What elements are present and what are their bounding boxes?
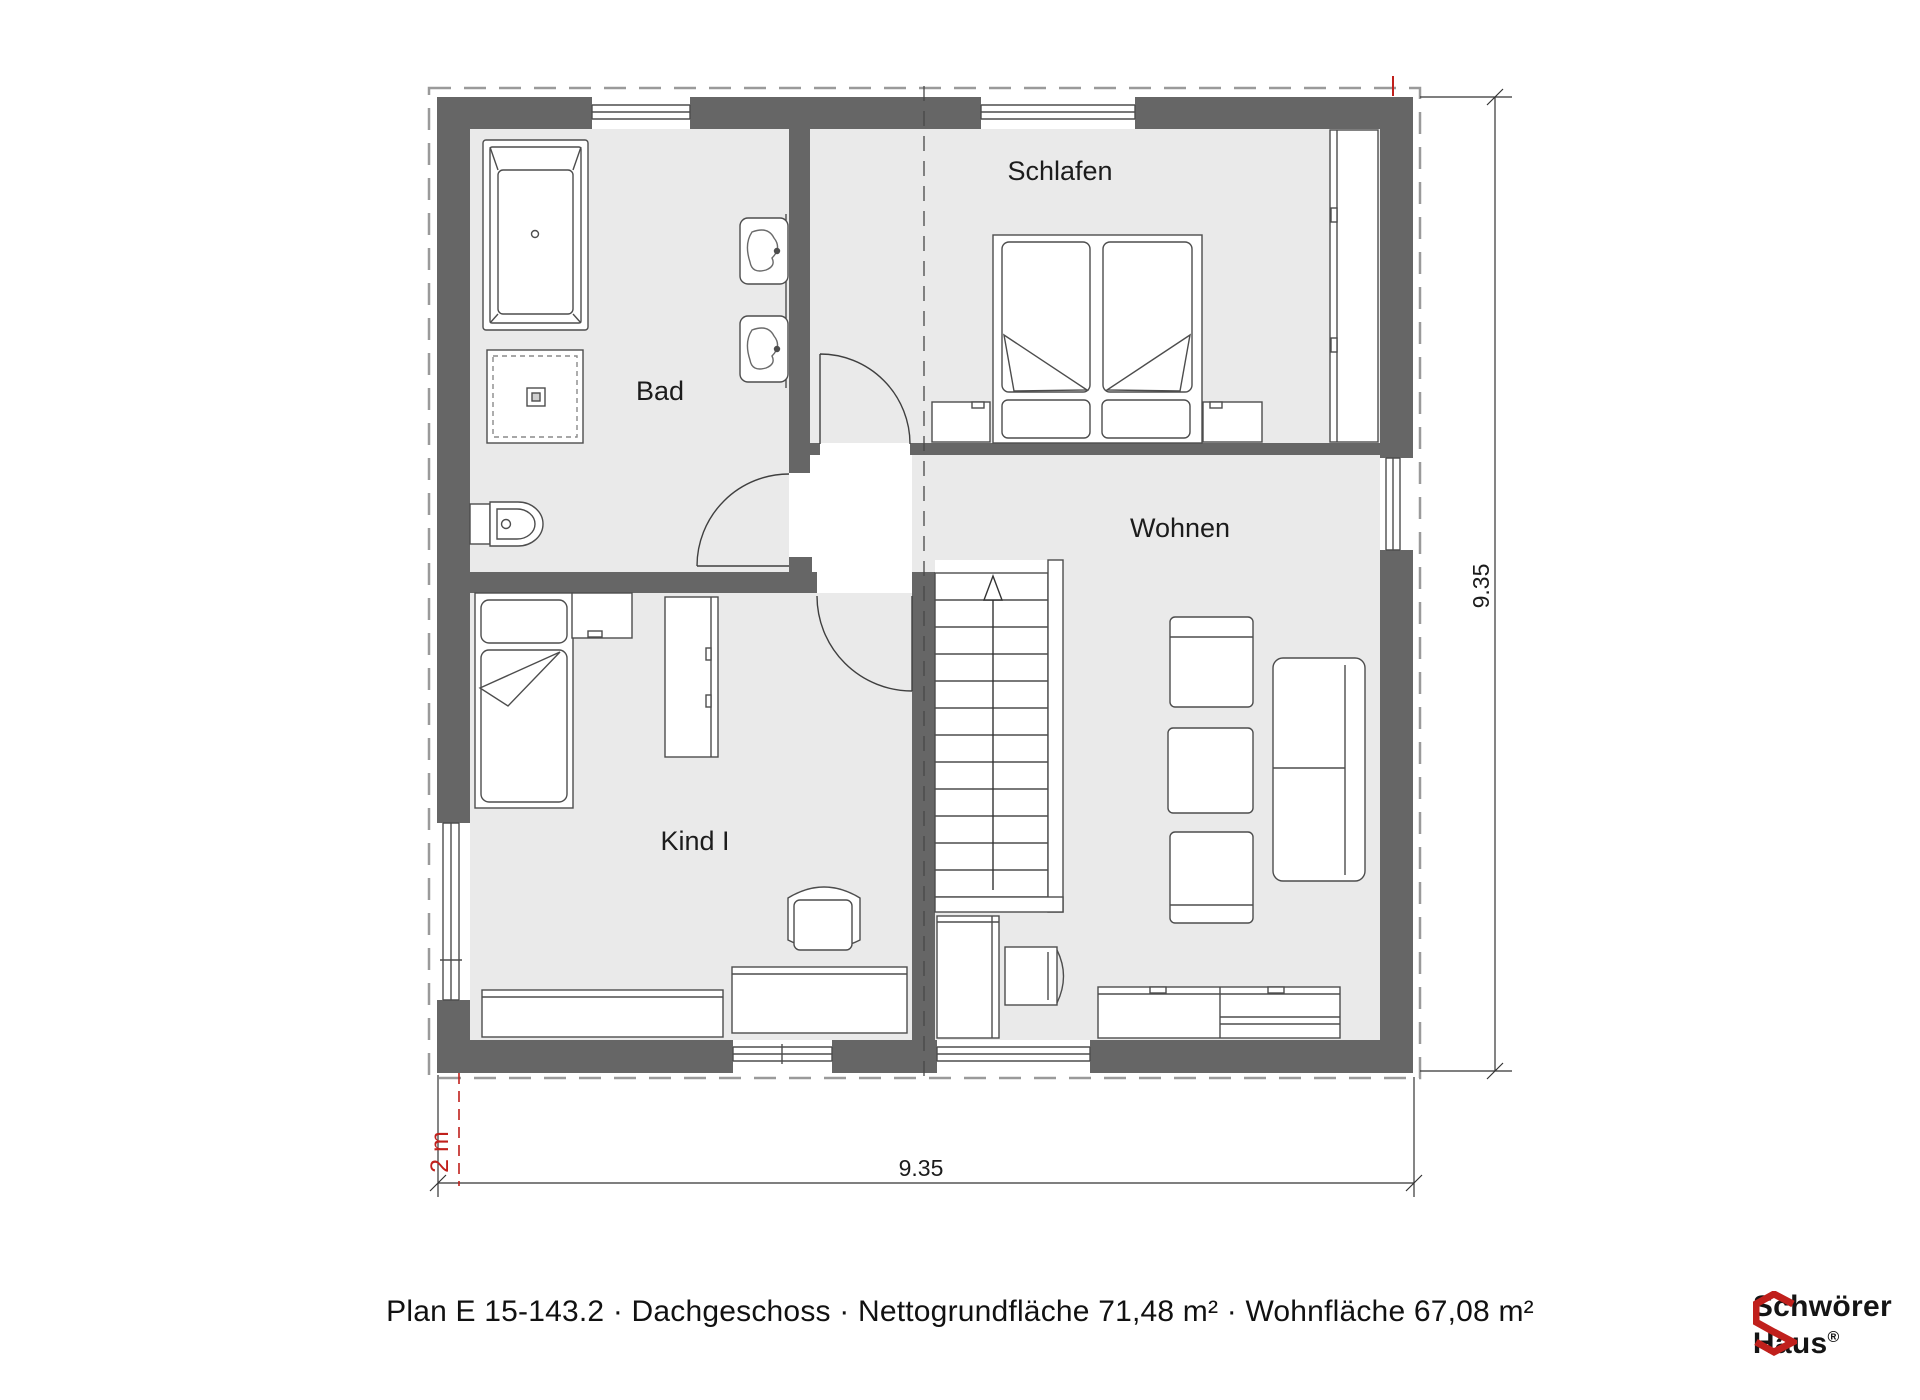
room-label-wohnen: Wohnen [1130,513,1230,543]
room-label-kind1: Kind I [660,826,729,856]
brand-logo: Schwörer Haus® [1753,1291,1892,1359]
sideboard-kind-2 [732,967,907,1033]
sideboard-wohnen-icon [1098,987,1340,1038]
desk-chair-icon [788,887,860,950]
desk-icon [572,593,632,638]
schwoererhaus-logo-icon [1753,1291,1797,1359]
wall-schlafen-south [910,443,1380,455]
sofa-icon [1273,658,1365,881]
shelf-under-stairs-icon [937,916,999,1038]
room-label-bad: Bad [636,376,684,406]
single-bed-icon [475,593,573,808]
double-bed-icon [993,235,1202,443]
dimension-label-height: 9.35 [1468,564,1494,609]
floor-plan-drawing: Bad Schlafen Wohnen Kind I 9.35 9.35 2 m [0,0,1920,1400]
room-label-schlafen: Schlafen [1007,156,1112,186]
armchair-icons [1168,617,1253,923]
shower-icon [487,350,583,443]
bathtub-icon [483,140,588,330]
staircase-icon [935,560,1063,912]
window-left-kind [440,823,462,1000]
wardrobe-schlafen-icon [1330,130,1378,442]
logo-registered: ® [1827,1329,1839,1346]
wall-kind-north [437,572,817,593]
toilet-icon [470,502,543,546]
dimension-label-width: 9.35 [899,1155,944,1181]
plan-caption: Plan E 15-143.2 · Dachgeschoss · Nettogr… [0,1295,1920,1329]
floor-plan-page: Bad Schlafen Wohnen Kind I 9.35 9.35 2 m… [0,0,1920,1400]
window-bottom-kind [733,1044,832,1064]
wall-bad-east [789,128,810,473]
dimension-label-2m: 2 m [426,1131,454,1173]
stair-railing [1048,560,1063,912]
wardrobe-kind-icon [665,597,718,757]
stove-icon [1005,947,1064,1005]
